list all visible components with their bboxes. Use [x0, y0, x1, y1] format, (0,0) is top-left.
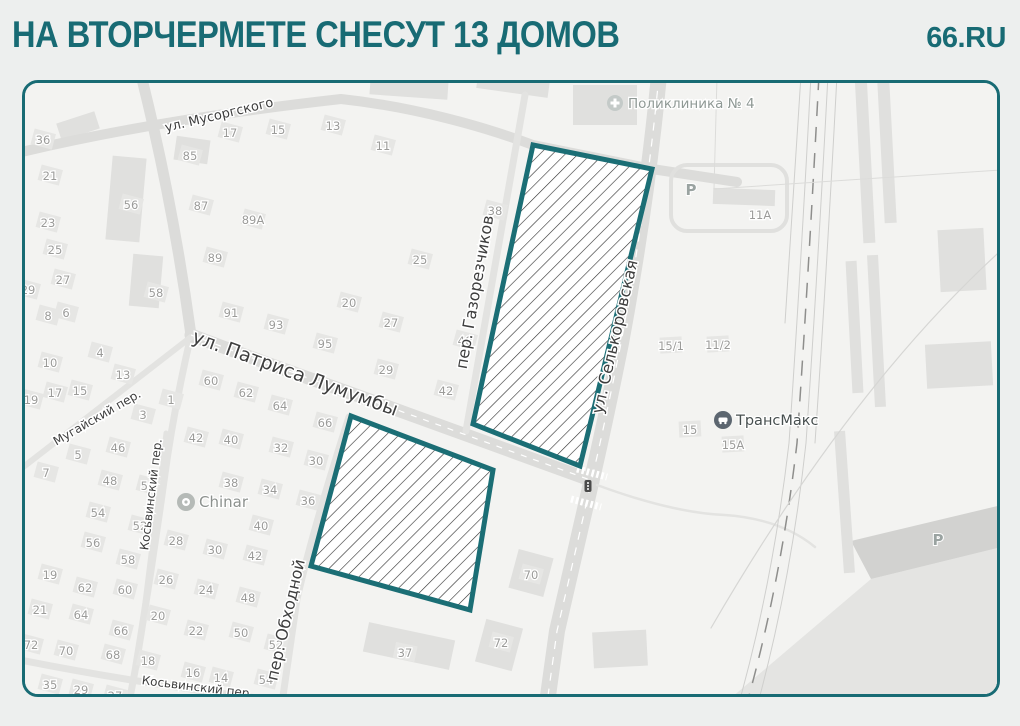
building-number: 26 — [159, 573, 174, 587]
poi-label: ТрансМакс — [735, 413, 819, 429]
building-number: 56 — [86, 536, 101, 550]
building — [713, 188, 776, 206]
building-number: 6 — [62, 306, 69, 320]
building-number: 17 — [48, 386, 63, 400]
building — [592, 630, 648, 669]
building-number: 60 — [204, 374, 219, 388]
building-number: 28 — [169, 534, 184, 548]
building-number: 87 — [194, 199, 209, 213]
building-number: 15/1 — [658, 339, 684, 353]
building-number: 29 — [25, 283, 35, 297]
building-number: 13 — [326, 119, 341, 133]
header: НА ВТОРЧЕРМЕТЕ СНЕСУТ 13 ДОМОВ 66.RU — [0, 0, 1020, 56]
building-number: 21 — [33, 603, 48, 617]
building-number: 13 — [116, 368, 131, 382]
building-number: 40 — [224, 433, 239, 447]
building-number: 72 — [494, 636, 509, 650]
building-number: 30 — [208, 543, 223, 557]
building-number: 66 — [114, 624, 129, 638]
building-number: 48 — [241, 591, 256, 605]
building-number: 7 — [42, 466, 49, 480]
poi-restaurant[interactable]: Chinar — [177, 493, 249, 511]
building-number: 23 — [41, 216, 56, 230]
parking-label: Р — [686, 181, 697, 199]
building-number: 17 — [223, 126, 238, 140]
building-number: 19 — [43, 568, 58, 582]
building-number: 70 — [59, 644, 74, 658]
building-number: 42 — [439, 384, 454, 398]
building-number: 48 — [103, 474, 118, 488]
building-number: 15 — [73, 384, 88, 398]
building-number: 22 — [189, 624, 204, 638]
building-number: 89А — [242, 213, 265, 227]
parking-label: Р — [933, 531, 944, 549]
building-number: 29 — [379, 363, 394, 377]
building-number: 66 — [318, 416, 333, 430]
building-number: 37 — [398, 646, 413, 660]
building-number: 72 — [25, 638, 38, 652]
building-number: 11 — [376, 139, 391, 153]
poi-label: Chinar — [199, 493, 249, 511]
building-number: 42 — [189, 431, 204, 445]
building-number: 34 — [263, 483, 278, 497]
building-number: 11А — [749, 208, 772, 222]
building-number: 19 — [25, 393, 38, 407]
building — [925, 341, 993, 388]
building-number: 15А — [722, 438, 745, 452]
building-number: 54 — [91, 506, 106, 520]
building-number: 91 — [224, 306, 239, 320]
map[interactable]: 362123252729858789А891715131138255658861… — [22, 80, 1000, 697]
page-title: НА ВТОРЧЕРМЕТЕ СНЕСУТ 13 ДОМОВ — [12, 14, 619, 56]
building-number: 36 — [36, 133, 51, 147]
building-number: 15 — [271, 123, 286, 137]
building-number: 11/2 — [705, 338, 731, 352]
building-number: 27 — [56, 273, 71, 287]
building-number: 46 — [111, 441, 126, 455]
building-number: 3 — [139, 408, 146, 422]
building-number: 5 — [74, 448, 81, 462]
building-number: 10 — [43, 356, 58, 370]
building-number: 29 — [74, 683, 89, 694]
building-number: 38 — [224, 476, 239, 490]
building-number: 18 — [141, 654, 156, 668]
building-number: 21 — [43, 169, 58, 183]
building-number: 25 — [413, 253, 428, 267]
building-number: 64 — [74, 608, 89, 622]
poi-label: Поликлиника № 4 — [628, 96, 755, 112]
building-number: 50 — [234, 626, 249, 640]
building-number: 4 — [96, 346, 103, 360]
building-number: 64 — [273, 399, 288, 413]
building-number: 70 — [524, 568, 539, 582]
building-number: 40 — [254, 519, 269, 533]
building-number: 27 — [384, 316, 399, 330]
building-number: 20 — [342, 296, 357, 310]
traffic-light-icon — [585, 480, 592, 492]
map-canvas: 362123252729858789А891715131138255658861… — [25, 83, 997, 694]
building-number: 93 — [269, 318, 284, 332]
building-number: 58 — [121, 553, 136, 567]
building-number: 15 — [683, 423, 698, 437]
building-number: 58 — [149, 286, 164, 300]
building-number: 95 — [318, 337, 333, 351]
building-number: 32 — [274, 441, 289, 455]
brand-logo: 66.RU — [926, 22, 1006, 55]
building-number: 24 — [199, 583, 214, 597]
building-number: 20 — [151, 609, 166, 623]
building-number: 36 — [301, 494, 316, 508]
building-number: 42 — [248, 549, 263, 563]
building-number: 35 — [43, 678, 58, 692]
building-number: 68 — [106, 648, 121, 662]
building — [937, 228, 986, 292]
building-number: 89 — [208, 251, 223, 265]
building-number: 60 — [118, 583, 133, 597]
building-number: 85 — [183, 149, 198, 163]
building-number: 62 — [78, 581, 93, 595]
building-number: 27 — [108, 689, 123, 694]
poi-medical-cross[interactable]: Поликлиника № 4 — [607, 95, 755, 112]
building-number: 56 — [124, 198, 139, 212]
building-number: 25 — [48, 243, 63, 257]
building-number: 30 — [309, 454, 324, 468]
building-number: 62 — [239, 386, 254, 400]
building-number: 8 — [44, 309, 51, 323]
building-number: 1 — [167, 393, 174, 407]
